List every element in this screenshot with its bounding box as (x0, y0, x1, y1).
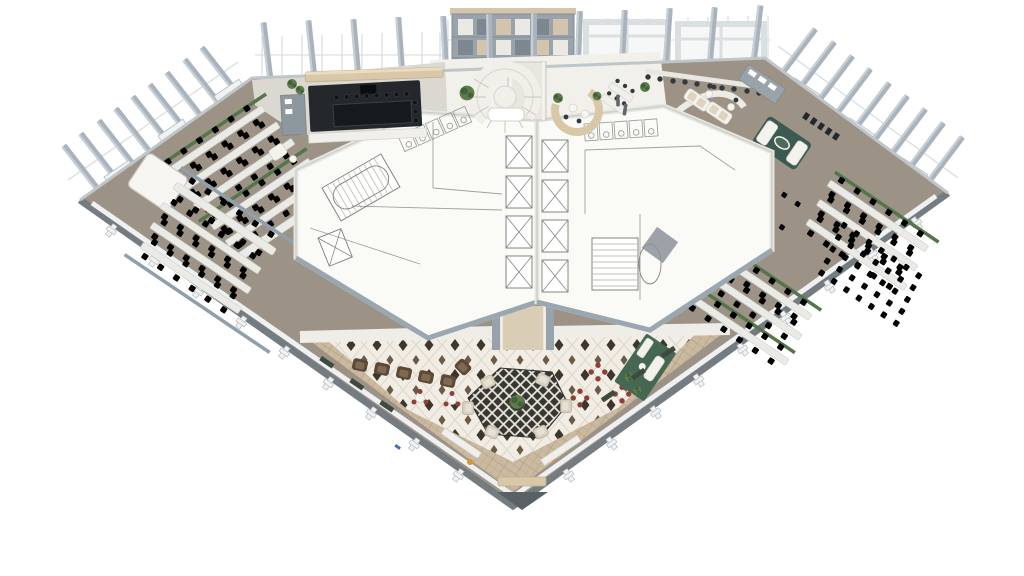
bar-plant (287, 79, 297, 89)
plaza-plant (510, 395, 524, 409)
banquette-plant (553, 93, 563, 103)
stair-plant (460, 86, 475, 101)
floorplan-render: Isometric 3D office floor plan rendering (0, 0, 1024, 576)
office-plant (296, 86, 305, 95)
accent-blue (394, 444, 401, 450)
person-figure (616, 95, 620, 107)
plaza: Diamond-tiled social plaza Central trell… (298, 306, 730, 510)
reception-desk (488, 108, 524, 121)
beanbag-orange (467, 459, 473, 465)
window-plant (640, 82, 650, 92)
render-viewport: Isometric 3D office floor plan rendering (0, 0, 1024, 576)
